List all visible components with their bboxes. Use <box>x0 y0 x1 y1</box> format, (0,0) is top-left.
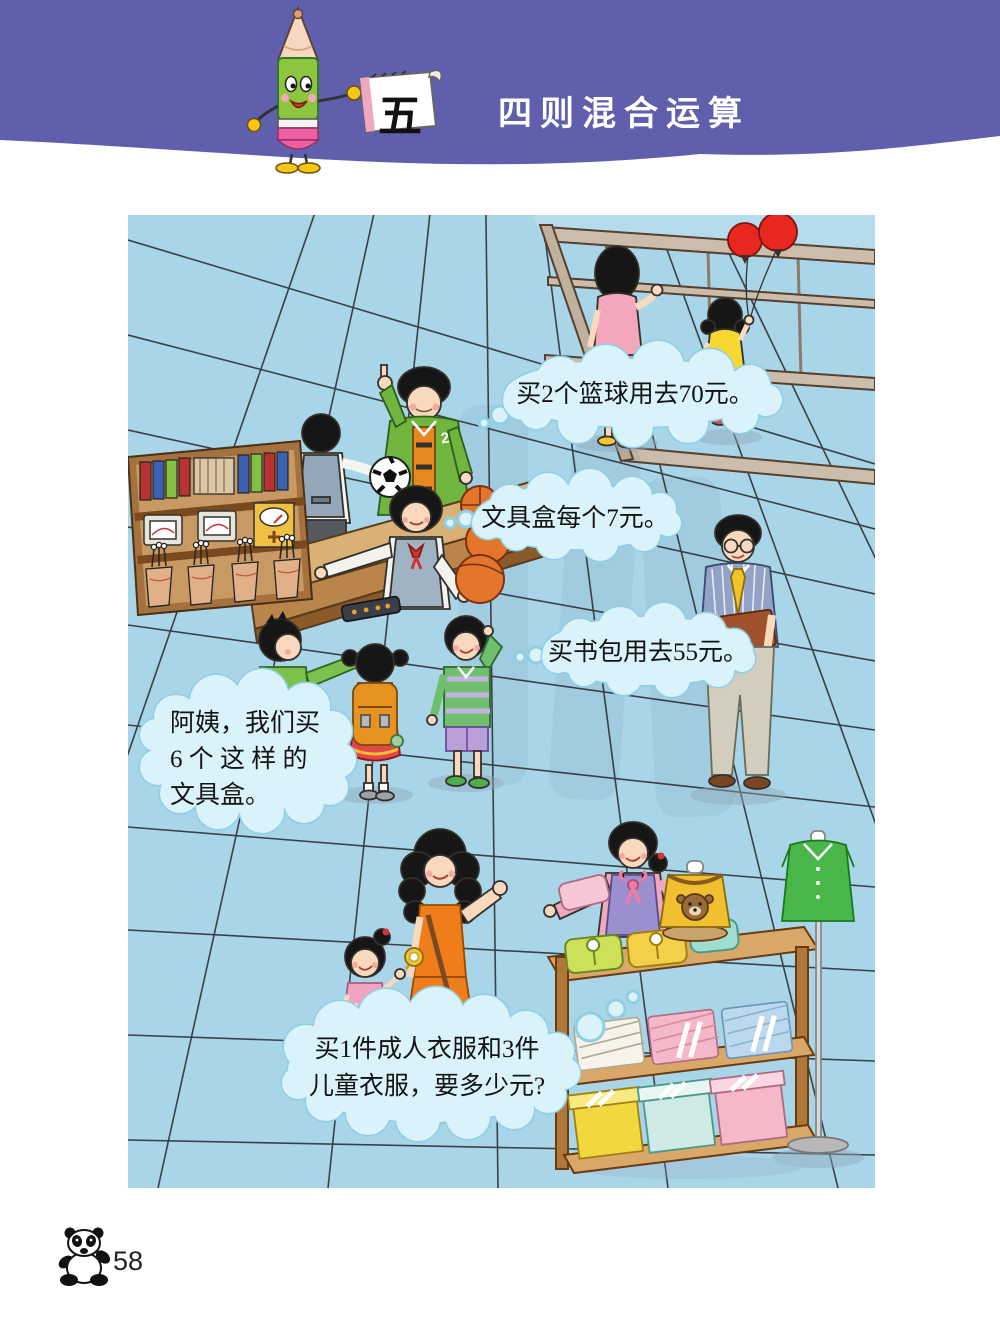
panda-logo-icon <box>56 1226 114 1288</box>
speech-buy-pencil-boxes: 阿姨，我们买 6 个 这 样 的 文具盒。 <box>170 706 350 814</box>
stationery-shelf <box>128 441 312 615</box>
balloon <box>759 215 797 251</box>
clothes-shelf <box>548 914 818 1173</box>
page-title: 四则混合运算 <box>498 86 750 135</box>
speech-clothes-question: 买1件成人衣服和3件 儿童衣服，要多少元? <box>296 1031 558 1105</box>
speech-schoolbag: 买书包用去55元。 <box>536 638 760 668</box>
speech-basketball: 买2个篮球用去70元。 <box>497 380 773 410</box>
speech-pencil-box-price: 文具盒每个7元。 <box>478 504 672 534</box>
page-number: 58 <box>113 1246 143 1277</box>
textbook-page: 五 四则混合运算 <box>0 0 1000 1336</box>
unit-number: 五 <box>368 80 432 144</box>
balloon <box>728 223 762 257</box>
